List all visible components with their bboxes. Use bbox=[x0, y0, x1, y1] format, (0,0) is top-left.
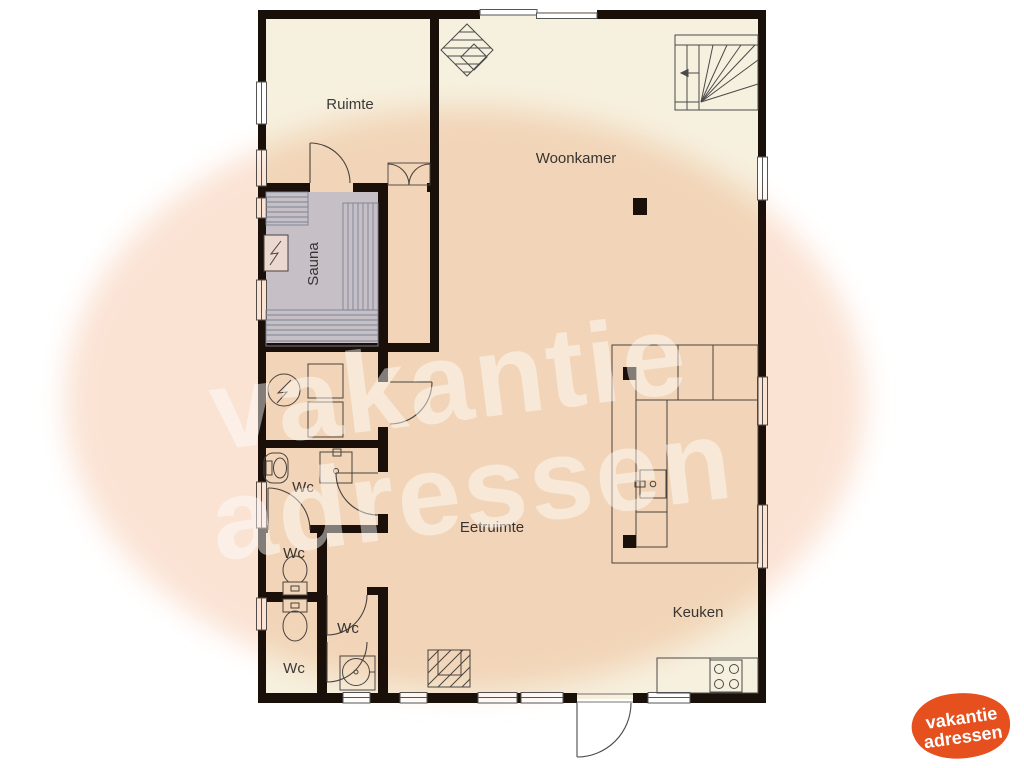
window bbox=[478, 693, 517, 704]
floorplan-image: Ruimte Woonkamer Sauna Eetruimte Keuken … bbox=[0, 0, 1024, 768]
window bbox=[400, 693, 427, 704]
entry-door bbox=[577, 694, 633, 757]
window bbox=[257, 82, 267, 124]
window bbox=[521, 693, 563, 704]
window bbox=[343, 693, 370, 704]
floorplan-svg: Ruimte Woonkamer Sauna Eetruimte Keuken … bbox=[0, 0, 1024, 768]
window bbox=[648, 693, 690, 704]
window bbox=[758, 157, 768, 200]
room-label-ruimte: Ruimte bbox=[326, 96, 374, 113]
logo: vakantie adressen bbox=[912, 693, 1010, 759]
